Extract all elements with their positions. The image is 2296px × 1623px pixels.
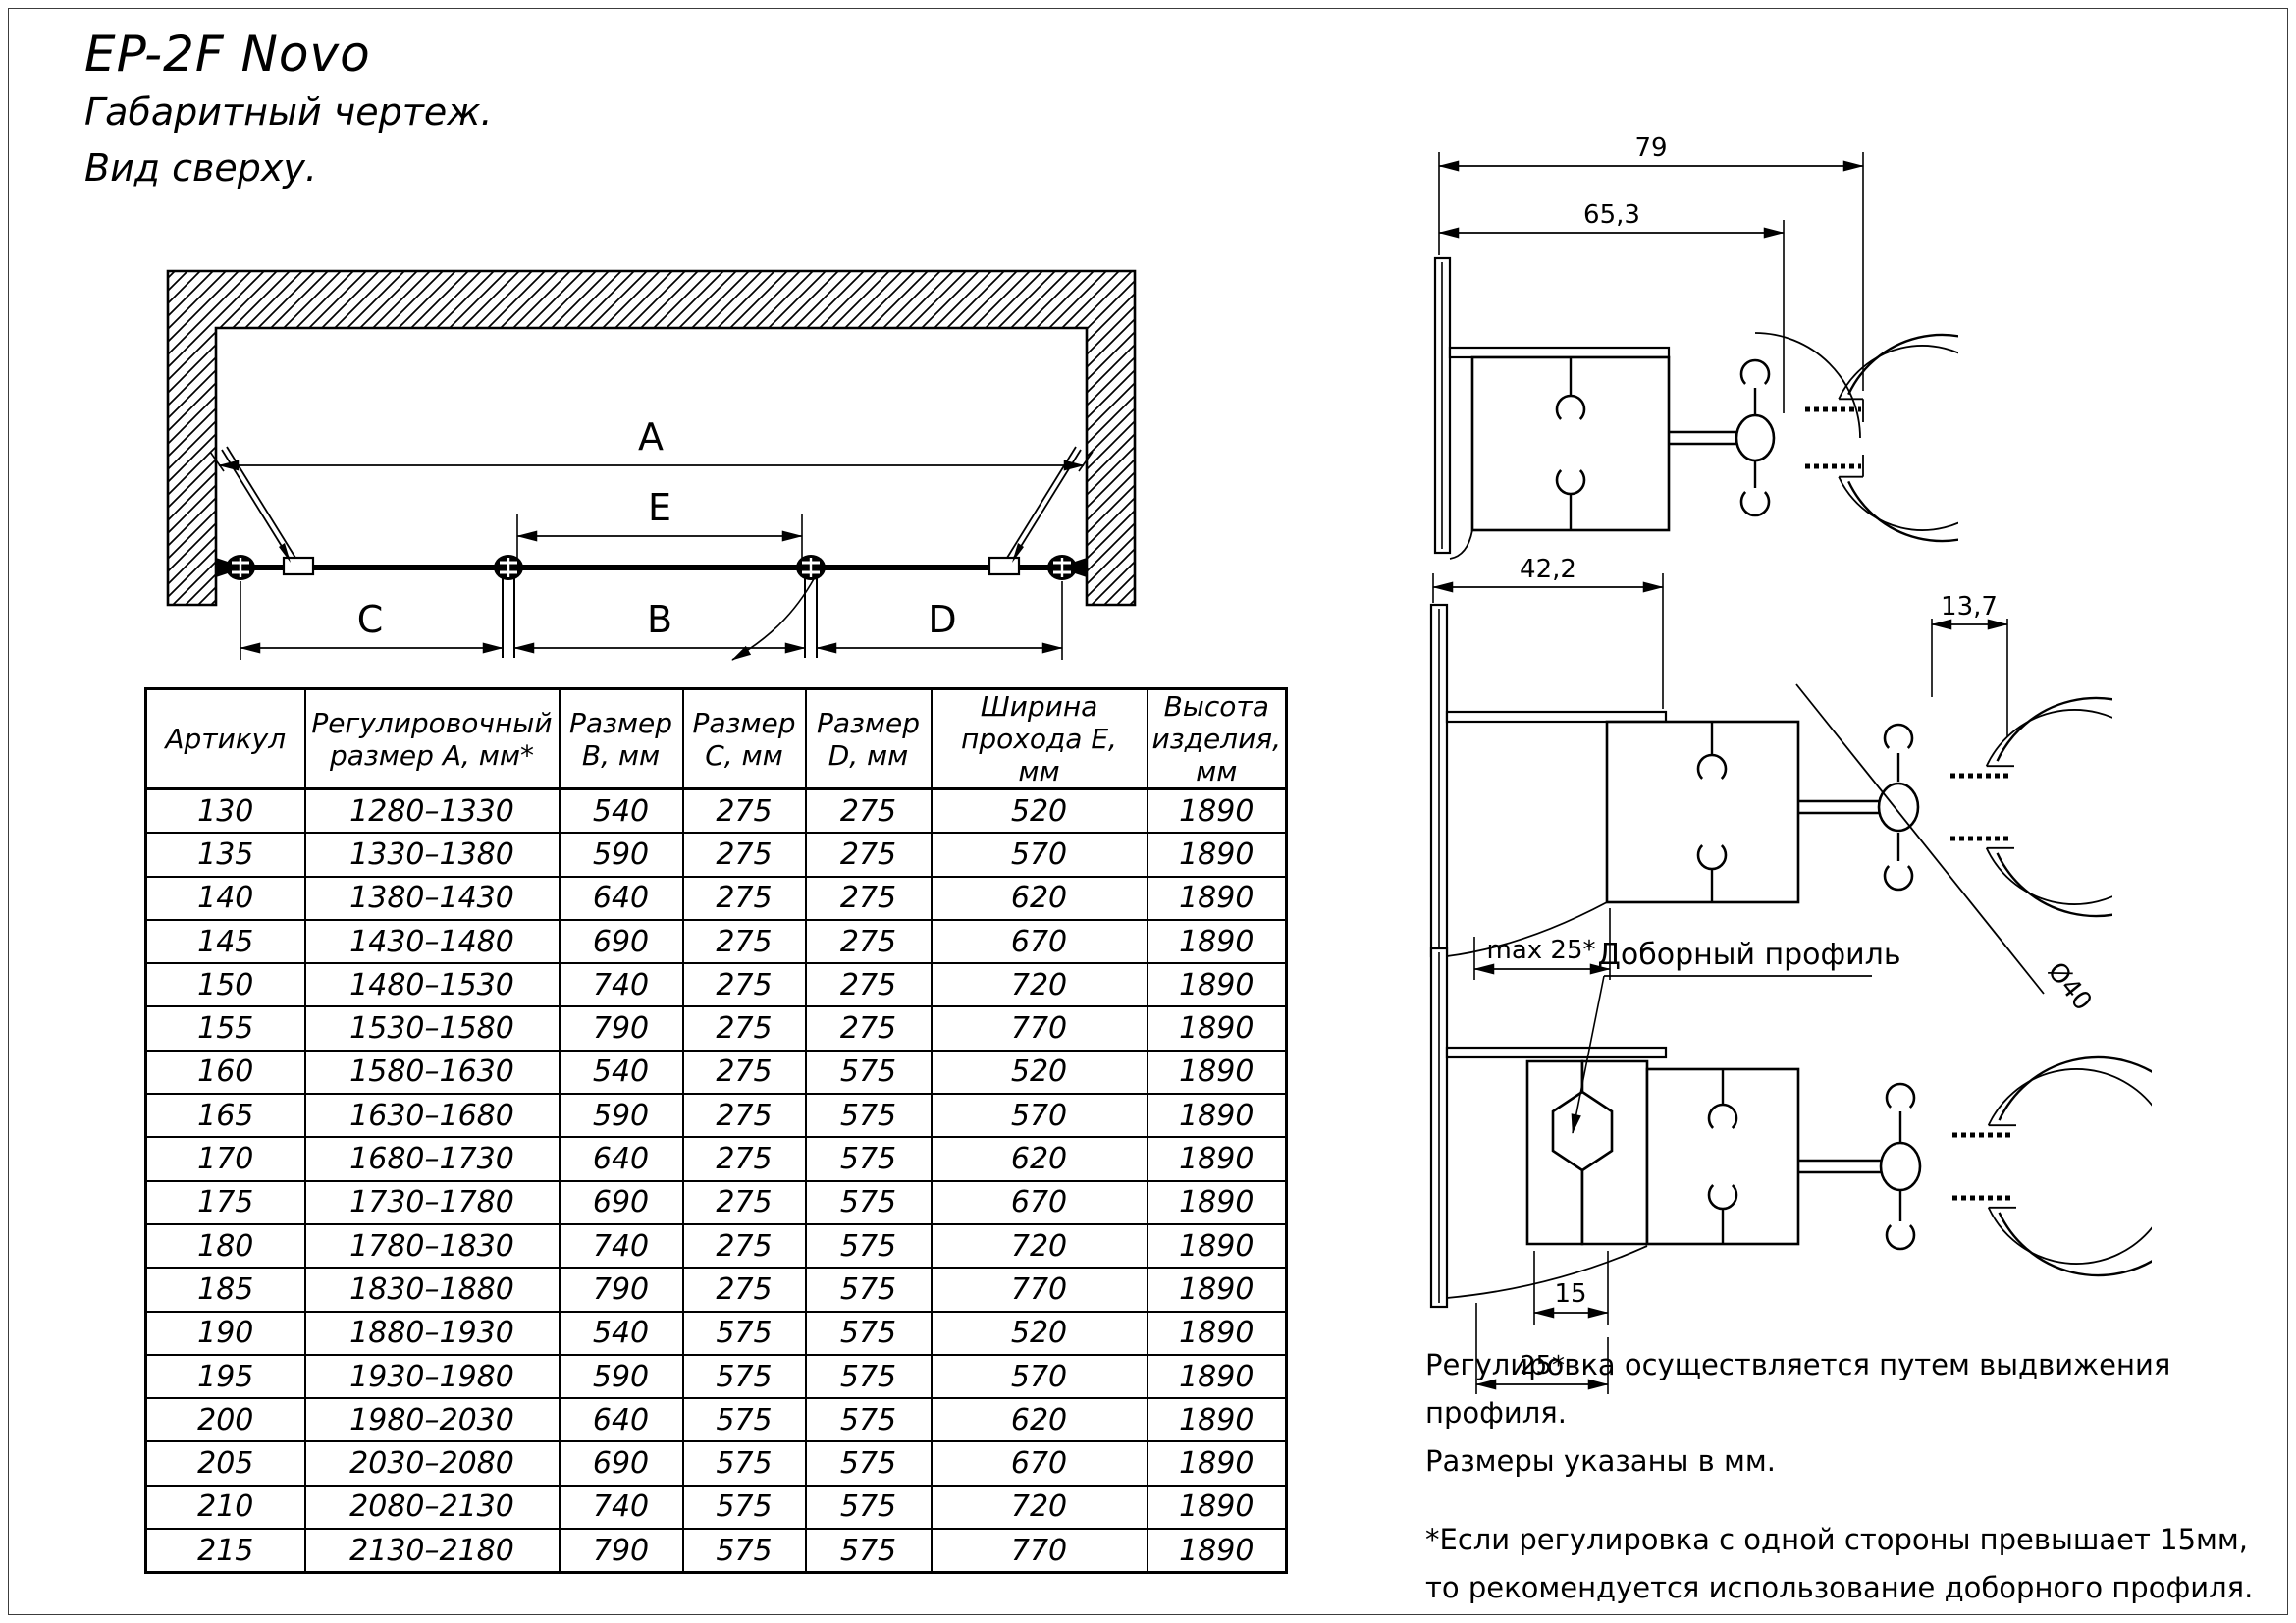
- table-cell: 185: [146, 1268, 305, 1311]
- table-row: 1401380–14306402752756201890: [146, 877, 1287, 920]
- dim-label-a: A: [638, 415, 664, 459]
- table-cell: 690: [560, 1181, 683, 1224]
- table-cell: 640: [560, 1398, 683, 1441]
- table-cell: 720: [932, 1224, 1148, 1268]
- table-cell: 1890: [1148, 1224, 1287, 1268]
- table-cell: 575: [683, 1441, 806, 1485]
- table-row: 1751730–17806902755756701890: [146, 1181, 1287, 1224]
- table-cell: 640: [560, 1137, 683, 1180]
- table-cell: 170: [146, 1137, 305, 1180]
- table-cell: 200: [146, 1398, 305, 1441]
- table-cell: 1730–1780: [305, 1181, 560, 1224]
- table-cell: 215: [146, 1529, 305, 1573]
- addon-profile-label: Доборный профиль: [1597, 938, 1900, 972]
- size-table-body: 1301280–133054027527552018901351330–1380…: [146, 789, 1287, 1573]
- table-cell: 2080–2130: [305, 1486, 560, 1529]
- notes-gap: [1425, 1486, 2296, 1516]
- table-cell: 540: [560, 1312, 683, 1355]
- table-row: 2102080–21307405755757201890: [146, 1486, 1287, 1529]
- col-header-article: Артикул: [146, 689, 305, 789]
- table-cell: 770: [932, 1529, 1148, 1573]
- col-header-size-c: Размер C, мм: [683, 689, 806, 789]
- table-row: 2152130–21807905755757701890: [146, 1529, 1287, 1573]
- table-cell: 275: [806, 920, 932, 963]
- table-row: 1901880–19305405755755201890: [146, 1312, 1287, 1355]
- table-cell: 155: [146, 1006, 305, 1050]
- table-cell: 1890: [1148, 963, 1287, 1006]
- table-cell: 575: [683, 1529, 806, 1573]
- dimension-a: A: [210, 415, 1093, 471]
- table-cell: 275: [683, 1181, 806, 1224]
- table-cell: 590: [560, 1094, 683, 1137]
- table-cell: 1890: [1148, 1268, 1287, 1311]
- table-cell: 275: [806, 877, 932, 920]
- table-cell: 210: [146, 1486, 305, 1529]
- dim-label-b: B: [647, 598, 672, 641]
- table-row: 1851830–18807902755757701890: [146, 1268, 1287, 1311]
- table-cell: 790: [560, 1268, 683, 1311]
- table-cell: 770: [932, 1268, 1148, 1311]
- dimension-42-2: 42,2: [1433, 555, 1663, 709]
- dimension-e: E: [517, 486, 802, 560]
- profile-body: [1447, 722, 1798, 956]
- table-cell: 1630–1680: [305, 1094, 560, 1137]
- dim-label-79: 79: [1634, 134, 1667, 163]
- table-cell: 1930–1980: [305, 1355, 560, 1398]
- table-cell: 690: [560, 920, 683, 963]
- table-cell: 1830–1880: [305, 1268, 560, 1311]
- table-cell: 275: [683, 1006, 806, 1050]
- table-cell: 1280–1330: [305, 789, 560, 834]
- table-cell: 520: [932, 1312, 1148, 1355]
- table-cell: 575: [806, 1268, 932, 1311]
- table-cell: 740: [560, 1486, 683, 1529]
- table-cell: 575: [806, 1529, 932, 1573]
- dimension-13-7: 13,7: [1932, 592, 2007, 736]
- table-cell: 575: [806, 1355, 932, 1398]
- page-title: EP-2F Novo: [84, 24, 493, 84]
- table-cell: 1890: [1148, 1312, 1287, 1355]
- col-header-size-b: Размер B, мм: [560, 689, 683, 789]
- table-cell: 575: [806, 1094, 932, 1137]
- table-cell: 575: [683, 1398, 806, 1441]
- table-cell: 590: [560, 1355, 683, 1398]
- hinge-middle-right: [796, 555, 826, 580]
- table-row: 1501480–15307402752757201890: [146, 963, 1287, 1006]
- table-cell: 690: [560, 1441, 683, 1485]
- table-cell: 575: [806, 1441, 932, 1485]
- table-cell: 275: [683, 833, 806, 876]
- table-cell: 620: [932, 1137, 1148, 1180]
- table-cell: 275: [683, 877, 806, 920]
- dimension-15: 15: [1534, 1251, 1608, 1325]
- table-cell: 720: [932, 963, 1148, 1006]
- table-cell: 175: [146, 1181, 305, 1224]
- table-row: 1451430–14806902752756701890: [146, 920, 1287, 963]
- table-cell: 1890: [1148, 1486, 1287, 1529]
- table-cell: 275: [683, 963, 806, 1006]
- table-cell: 1890: [1148, 920, 1287, 963]
- table-row: 2001980–20306405755756201890: [146, 1398, 1287, 1441]
- table-cell: 275: [806, 789, 932, 834]
- table-cell: 575: [683, 1312, 806, 1355]
- plan-view-drawing: A E C B D: [143, 251, 1243, 688]
- note-line-1: Регулировка осуществляется путем выдвиже…: [1425, 1341, 2296, 1437]
- table-cell: 190: [146, 1312, 305, 1355]
- table-cell: 1680–1730: [305, 1137, 560, 1180]
- table-cell: 1980–2030: [305, 1398, 560, 1441]
- table-row: 1651630–16805902755755701890: [146, 1094, 1287, 1137]
- table-cell: 150: [146, 963, 305, 1006]
- dim-label-c: C: [357, 598, 384, 641]
- dim-label-65-3: 65,3: [1583, 200, 1640, 230]
- addon-profile: [1527, 1061, 1647, 1244]
- table-cell: 275: [683, 1224, 806, 1268]
- dim-label-42-2: 42,2: [1520, 555, 1576, 584]
- note-line-4: то рекомендуется использование доборного…: [1425, 1564, 2296, 1612]
- dimension-c: C: [240, 581, 503, 660]
- table-cell: 2030–2080: [305, 1441, 560, 1485]
- table-cell: 1780–1830: [305, 1224, 560, 1268]
- table-cell: 1890: [1148, 833, 1287, 876]
- table-cell: 1890: [1148, 1398, 1287, 1441]
- table-cell: 275: [683, 789, 806, 834]
- table-cell: 575: [806, 1224, 932, 1268]
- table-cell: 570: [932, 1094, 1148, 1137]
- table-cell: 165: [146, 1094, 305, 1137]
- table-cell: 1480–1530: [305, 963, 560, 1006]
- table-cell: 575: [806, 1051, 932, 1094]
- table-cell: 575: [806, 1486, 932, 1529]
- table-cell: 670: [932, 1181, 1148, 1224]
- table-cell: 130: [146, 789, 305, 834]
- table-row: 1551530–15807902752757701890: [146, 1006, 1287, 1050]
- table-cell: 1380–1430: [305, 877, 560, 920]
- table-cell: 160: [146, 1051, 305, 1094]
- table-row: 1601580–16305402755755201890: [146, 1051, 1287, 1094]
- table-cell: 720: [932, 1486, 1148, 1529]
- table-cell: 1890: [1148, 1137, 1287, 1180]
- table-cell: 520: [932, 1051, 1148, 1094]
- table-cell: 740: [560, 963, 683, 1006]
- table-cell: 1890: [1148, 1355, 1287, 1398]
- table-cell: 1890: [1148, 1441, 1287, 1485]
- table-cell: 620: [932, 1398, 1148, 1441]
- table-cell: 1330–1380: [305, 833, 560, 876]
- col-header-height: Высота изделия, мм: [1148, 689, 1287, 789]
- col-header-width-e: Ширина прохода E, мм: [932, 689, 1148, 789]
- dim-label-13-7: 13,7: [1941, 592, 1998, 622]
- table-cell: 275: [806, 833, 932, 876]
- hinge-wall-right: [1047, 555, 1087, 580]
- table-cell: 1880–1930: [305, 1312, 560, 1355]
- table-cell: 275: [683, 1268, 806, 1311]
- table-cell: 770: [932, 1006, 1148, 1050]
- table-row: 2052030–20806905755756701890: [146, 1441, 1287, 1485]
- notes: Регулировка осуществляется путем выдвиже…: [1425, 1341, 2296, 1612]
- col-header-size-a: Регулировочный размер А, мм*: [305, 689, 560, 789]
- table-cell: 1890: [1148, 1051, 1287, 1094]
- table-row: 1951930–19805905755755701890: [146, 1355, 1287, 1398]
- dim-label-15: 15: [1554, 1279, 1586, 1309]
- table-cell: 2130–2180: [305, 1529, 560, 1573]
- table-cell: 1430–1480: [305, 920, 560, 963]
- table-cell: 205: [146, 1441, 305, 1485]
- page-subtitle-2: Вид сверху.: [84, 140, 493, 196]
- table-cell: 670: [932, 1441, 1148, 1485]
- hinge-wall-left: [216, 555, 255, 580]
- table-cell: 640: [560, 877, 683, 920]
- table-cell: 790: [560, 1006, 683, 1050]
- table-cell: 620: [932, 877, 1148, 920]
- table-cell: 275: [806, 1006, 932, 1050]
- round-profile: [1798, 1057, 2152, 1275]
- table-cell: 575: [806, 1398, 932, 1441]
- table-cell: 540: [560, 1051, 683, 1094]
- table-header-row: Артикул Регулировочный размер А, мм* Раз…: [146, 689, 1287, 789]
- size-table: Артикул Регулировочный размер А, мм* Раз…: [144, 687, 1288, 1574]
- table-cell: 575: [806, 1137, 932, 1180]
- table-cell: 590: [560, 833, 683, 876]
- col-header-size-d: Размер D, мм: [806, 689, 932, 789]
- dim-label-d: D: [928, 598, 956, 641]
- table-cell: 740: [560, 1224, 683, 1268]
- table-cell: 570: [932, 1355, 1148, 1398]
- dimension-d: D: [817, 581, 1062, 660]
- table-cell: 1530–1580: [305, 1006, 560, 1050]
- table-cell: 1890: [1148, 1094, 1287, 1137]
- table-row: 1801780–18307402755757201890: [146, 1224, 1287, 1268]
- page-subtitle-1: Габаритный чертеж.: [84, 84, 493, 140]
- table-row: 1351330–13805902752755701890: [146, 833, 1287, 876]
- table-cell: 575: [683, 1486, 806, 1529]
- table-cell: 1890: [1148, 877, 1287, 920]
- table-cell: 670: [932, 920, 1148, 963]
- table-row: 1701680–17306402755756201890: [146, 1137, 1287, 1180]
- table-cell: 1580–1630: [305, 1051, 560, 1094]
- table-cell: 790: [560, 1529, 683, 1573]
- table-cell: 180: [146, 1224, 305, 1268]
- title-block: EP-2F Novo Габаритный чертеж. Вид сверху…: [84, 24, 493, 196]
- table-cell: 1890: [1148, 1181, 1287, 1224]
- dim-label-e: E: [648, 486, 671, 529]
- table-cell: 540: [560, 789, 683, 834]
- table-cell: 145: [146, 920, 305, 963]
- table-cell: 575: [683, 1355, 806, 1398]
- round-profile: [1669, 333, 1958, 541]
- table-cell: 520: [932, 789, 1148, 834]
- hinge-middle-left: [494, 555, 523, 580]
- profile-section-top: 79 65,3: [1428, 123, 1958, 579]
- table-cell: 275: [683, 1094, 806, 1137]
- table-cell: 570: [932, 833, 1148, 876]
- table-cell: 575: [806, 1312, 932, 1355]
- note-line-3: *Если регулировка с одной стороны превыш…: [1425, 1516, 2296, 1564]
- table-cell: 140: [146, 877, 305, 920]
- note-line-2: Размеры указаны в мм.: [1425, 1437, 2296, 1486]
- table-cell: 1890: [1148, 1006, 1287, 1050]
- table-cell: 275: [806, 963, 932, 1006]
- profile-body: [1450, 357, 1669, 559]
- table-cell: 195: [146, 1355, 305, 1398]
- table-cell: 1890: [1148, 1529, 1287, 1573]
- table-cell: 275: [683, 1051, 806, 1094]
- table-cell: 575: [806, 1181, 932, 1224]
- table-cell: 275: [683, 1137, 806, 1180]
- table-cell: 275: [683, 920, 806, 963]
- table-cell: 135: [146, 833, 305, 876]
- table-row: 1301280–13305402752755201890: [146, 789, 1287, 834]
- table-cell: 1890: [1148, 789, 1287, 834]
